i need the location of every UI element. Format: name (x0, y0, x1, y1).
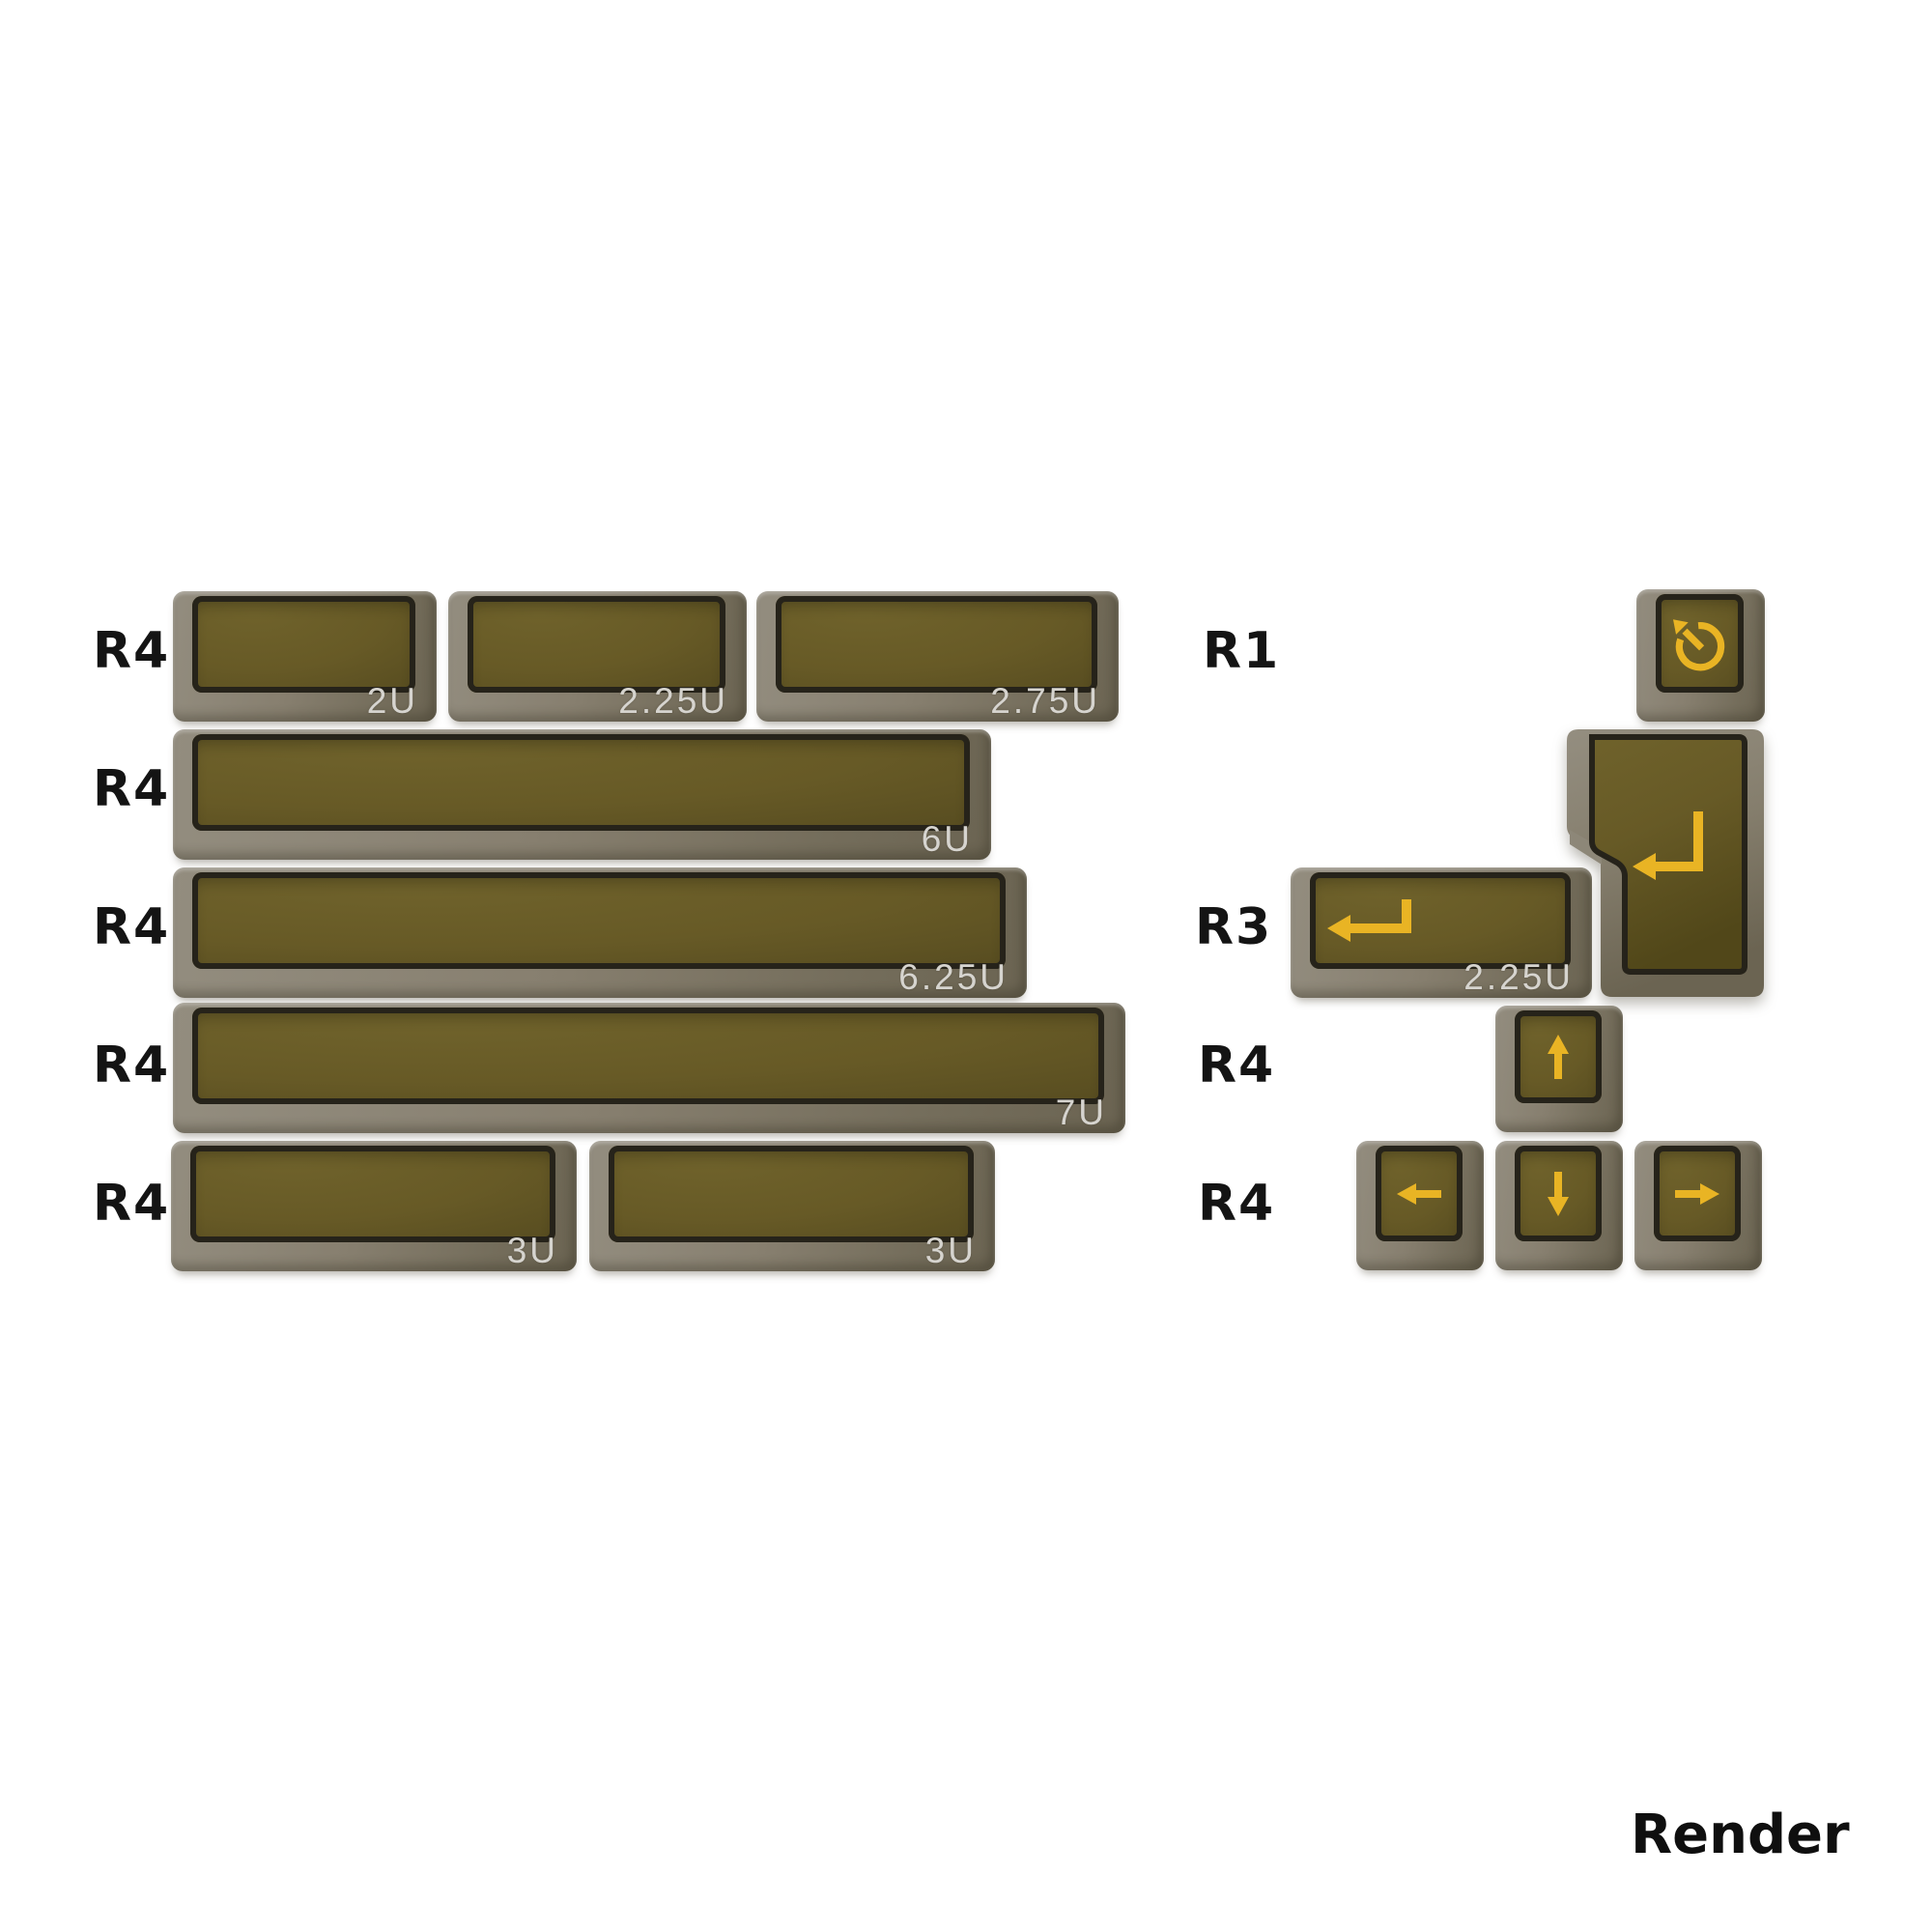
keycap-size-label: 6.25U (898, 959, 1009, 995)
keycap-top-face (1376, 1146, 1463, 1241)
keycap-size-label: 2.75U (990, 683, 1100, 719)
keycap-top-face (192, 596, 415, 693)
row-label-left-3: R4 (93, 902, 170, 952)
row-label-right-r1: R1 (1203, 626, 1280, 676)
undo-keycap (1636, 589, 1765, 722)
arrow-down-icon (1544, 1169, 1573, 1219)
keycap-render-canvas: R4 R4 R4 R4 R4 2U 2.25U 2.75U 6U 6.25U 7… (0, 0, 1932, 1932)
row-label-left-1: R4 (93, 626, 170, 676)
row-label-left-5: R4 (93, 1179, 170, 1229)
keycap-2u: 2U (173, 591, 437, 722)
keycap-top-face (1654, 1146, 1741, 1241)
keycap-top-face (609, 1146, 974, 1242)
keycap-size-label: 2.25U (1463, 959, 1574, 995)
row-label-right-r4b: R4 (1198, 1179, 1275, 1229)
keycap-size-label: 2U (367, 683, 418, 719)
keycap-top-face (468, 596, 725, 693)
keycap-top-face (776, 596, 1097, 693)
keycap-top-face (192, 1008, 1104, 1104)
right-arrow-keycap (1634, 1141, 1762, 1270)
keycap-size-label: 3U (507, 1233, 558, 1268)
keycap-7u-spacebar: 7U (173, 1003, 1125, 1133)
keycap-size-label: 6U (922, 821, 973, 857)
keycap-6-25u-spacebar: 6.25U (173, 867, 1027, 998)
keycap-top-face (1656, 594, 1744, 693)
keycap-size-label: 2.25U (618, 683, 728, 719)
keycap-3u-spacebar-1: 3U (171, 1141, 577, 1271)
iso-enter-keycap (1567, 729, 1764, 997)
left-arrow-keycap (1356, 1141, 1484, 1270)
row-label-right-r4a: R4 (1198, 1040, 1275, 1091)
arrow-left-icon (1394, 1179, 1444, 1208)
return-keycap-2-25u: 2.25U (1291, 867, 1592, 998)
keycap-top-face (192, 734, 970, 831)
row-label-right-r3: R3 (1195, 902, 1272, 952)
keycap-top-face (192, 872, 1006, 969)
keycap-size-label: 3U (925, 1233, 977, 1268)
row-label-left-2: R4 (93, 764, 170, 814)
keycap-top-face (190, 1146, 555, 1242)
return-icon (1325, 895, 1422, 946)
keycap-3u-spacebar-2: 3U (589, 1141, 995, 1271)
keycap-top-face (1515, 1146, 1602, 1241)
keycap-2-75u: 2.75U (756, 591, 1119, 722)
keycap-6u-spacebar: 6U (173, 729, 991, 860)
arrow-up-icon (1544, 1032, 1573, 1082)
arrow-right-icon (1672, 1179, 1722, 1208)
rotate-ccw-icon (1662, 605, 1739, 682)
keycap-top-face (1515, 1010, 1602, 1103)
row-label-left-4: R4 (93, 1040, 170, 1091)
keycap-2-25u: 2.25U (448, 591, 747, 722)
keycap-size-label: 7U (1056, 1094, 1107, 1130)
down-arrow-keycap (1495, 1141, 1623, 1270)
up-arrow-keycap (1495, 1006, 1623, 1132)
render-caption: Render (1631, 1808, 1850, 1862)
keycap-top-face (1310, 872, 1571, 969)
